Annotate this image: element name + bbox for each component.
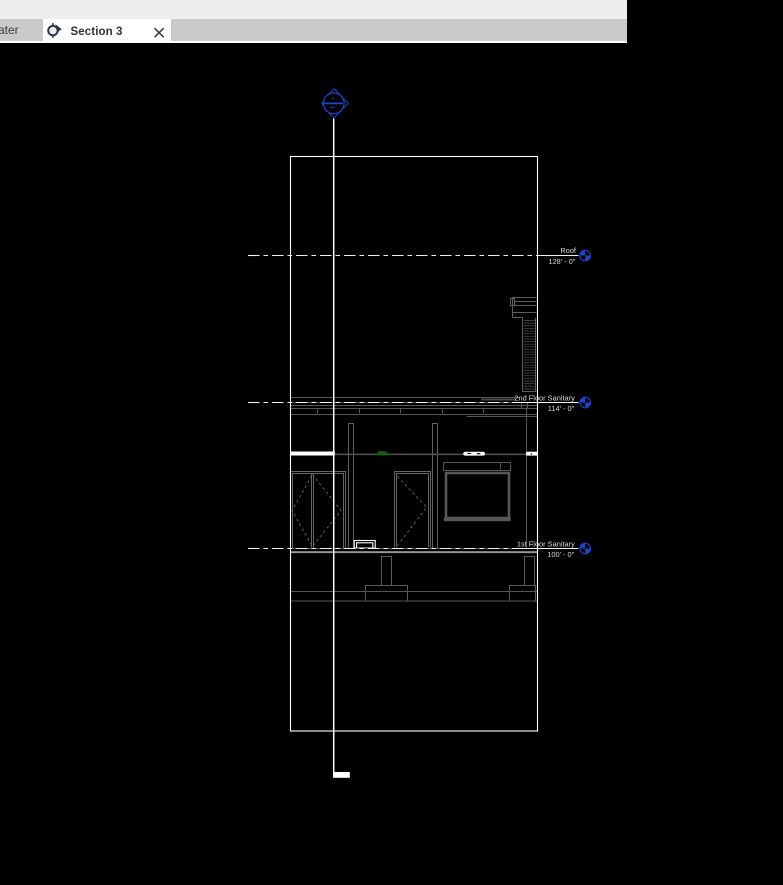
svg-text:2nd Floor Sanitary: 2nd Floor Sanitary [514,393,575,402]
svg-text:1st Floor Sanitary: 1st Floor Sanitary [517,539,575,548]
svg-text:128' - 0": 128' - 0" [548,257,575,266]
svg-text:114' - 0": 114' - 0" [548,404,575,413]
svg-text:100' - 0": 100' - 0" [547,550,574,559]
svg-text:Roof: Roof [560,246,577,255]
